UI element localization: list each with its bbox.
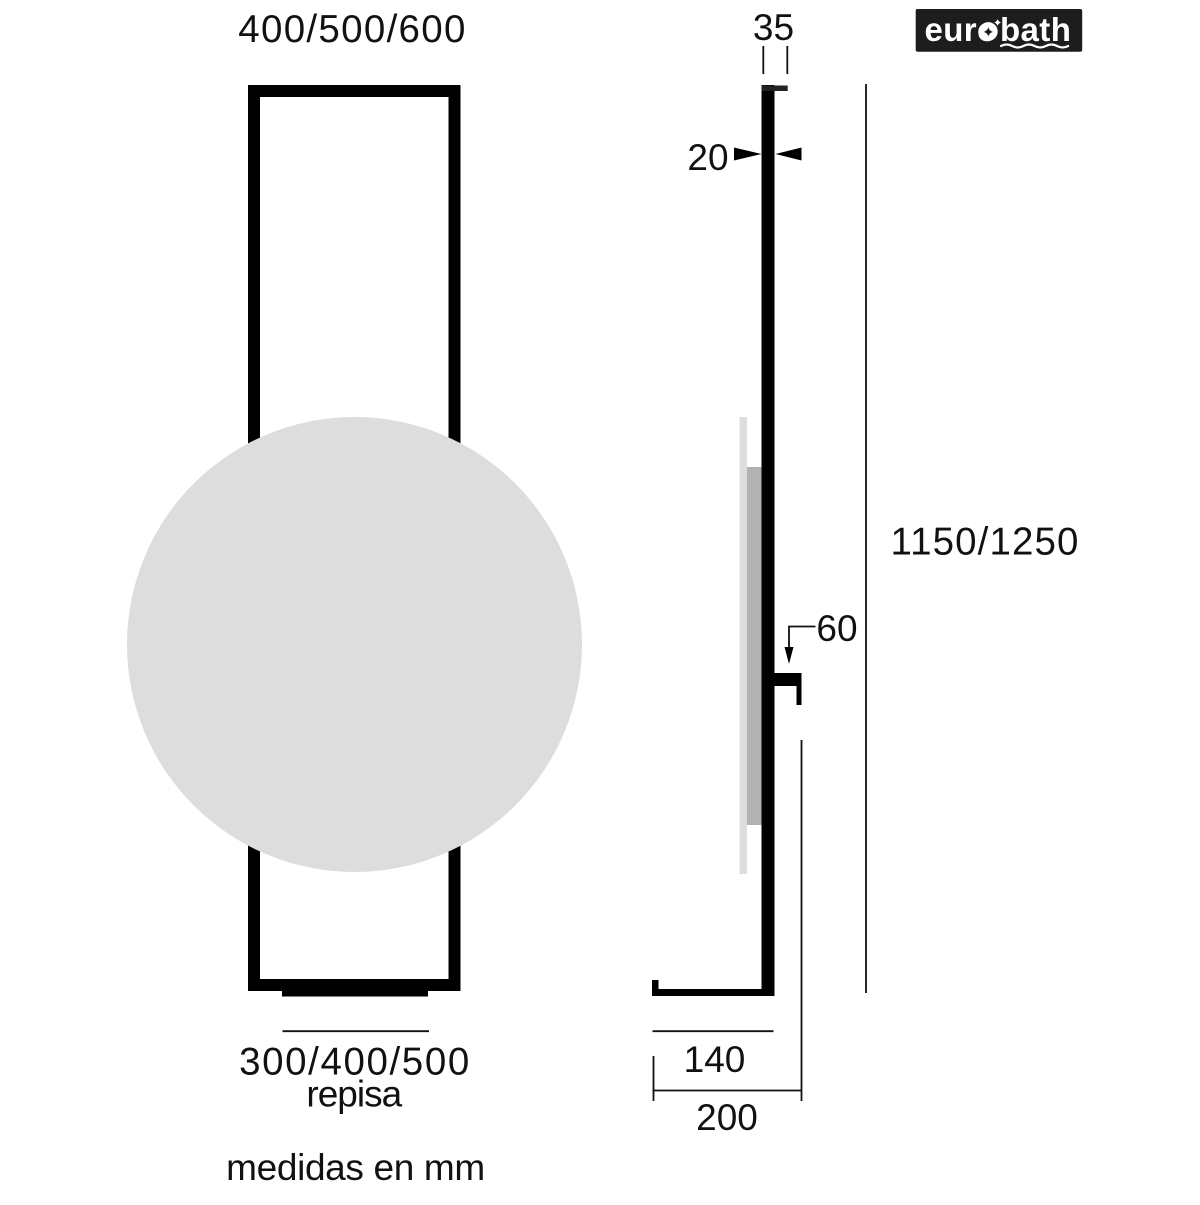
svg-text:repisa: repisa (306, 1074, 402, 1115)
svg-text:1150/1250: 1150/1250 (890, 521, 1079, 564)
svg-text:medidas en mm: medidas en mm (226, 1147, 485, 1188)
svg-text:200: 200 (696, 1097, 758, 1138)
svg-text:140: 140 (684, 1039, 746, 1080)
svg-text:bath: bath (1000, 11, 1071, 48)
svg-text:35: 35 (753, 7, 794, 48)
svg-text:400/500/600: 400/500/600 (238, 8, 466, 51)
svg-text:60: 60 (816, 608, 857, 649)
svg-text:20: 20 (687, 137, 728, 178)
